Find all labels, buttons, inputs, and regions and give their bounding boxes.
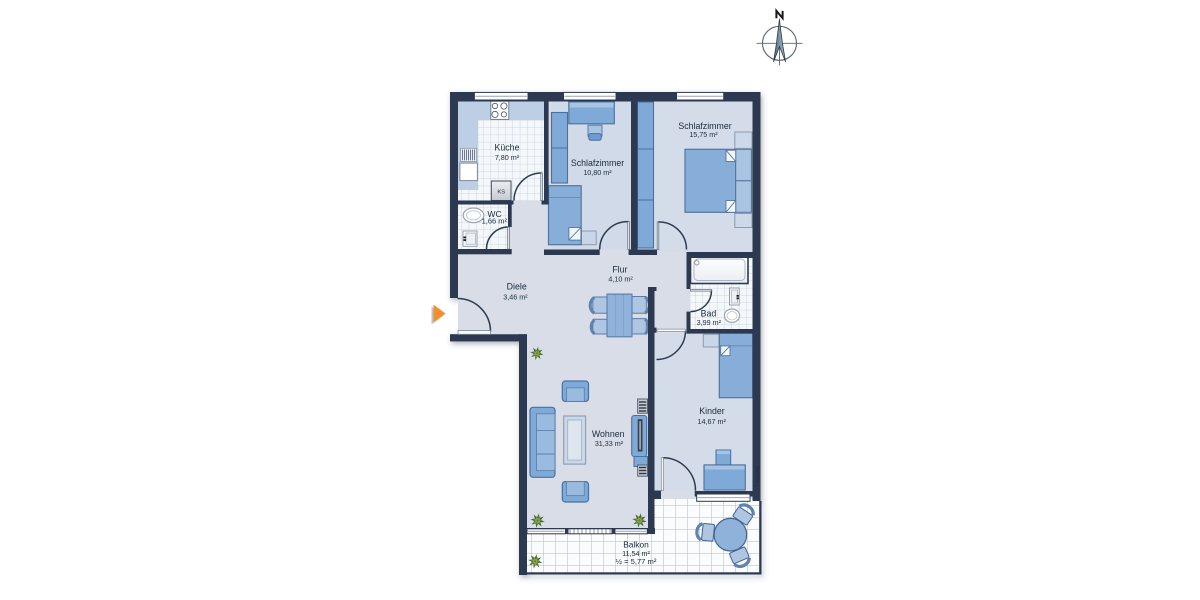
svg-text:15,75 m²: 15,75 m² [689,130,718,139]
svg-text:Diele: Diele [507,282,527,292]
svg-text:Küche: Küche [495,142,520,152]
svg-text:4,10 m²: 4,10 m² [608,275,633,284]
svg-text:1,66 m²: 1,66 m² [482,216,508,225]
svg-text:KS: KS [497,189,505,195]
svg-text:7,80 m²: 7,80 m² [495,153,520,162]
svg-text:½ = 5,77 m²: ½ = 5,77 m² [616,557,657,566]
svg-text:Flur: Flur [612,265,627,275]
svg-text:3,99 m²: 3,99 m² [697,318,722,327]
svg-text:f 7wedMa: f 7wedMa [755,466,760,486]
svg-text:Schlafzimmer: Schlafzimmer [571,158,624,168]
svg-text:10,80 m²: 10,80 m² [583,168,612,177]
svg-text:3,46 m²: 3,46 m² [503,293,528,302]
svg-text:Kinder: Kinder [699,406,724,416]
svg-text:Balkon: Balkon [623,539,649,549]
svg-text:31,33 m²: 31,33 m² [595,439,624,448]
svg-text:Wohnen: Wohnen [592,429,625,439]
svg-text:14,67 m²: 14,67 m² [698,417,727,426]
